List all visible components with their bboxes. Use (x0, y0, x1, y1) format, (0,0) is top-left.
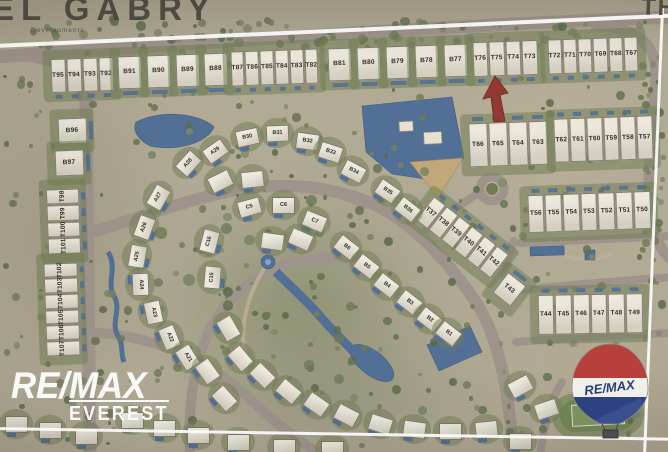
remax-balloon-logo: RE/MAX (0, 0, 668, 452)
balloon-red-band (566, 340, 656, 378)
balloon-basket (603, 430, 618, 438)
masterplan-photo: T95T94T93T92B91B90B89B88T87T86T85T84T83T… (0, 0, 668, 452)
